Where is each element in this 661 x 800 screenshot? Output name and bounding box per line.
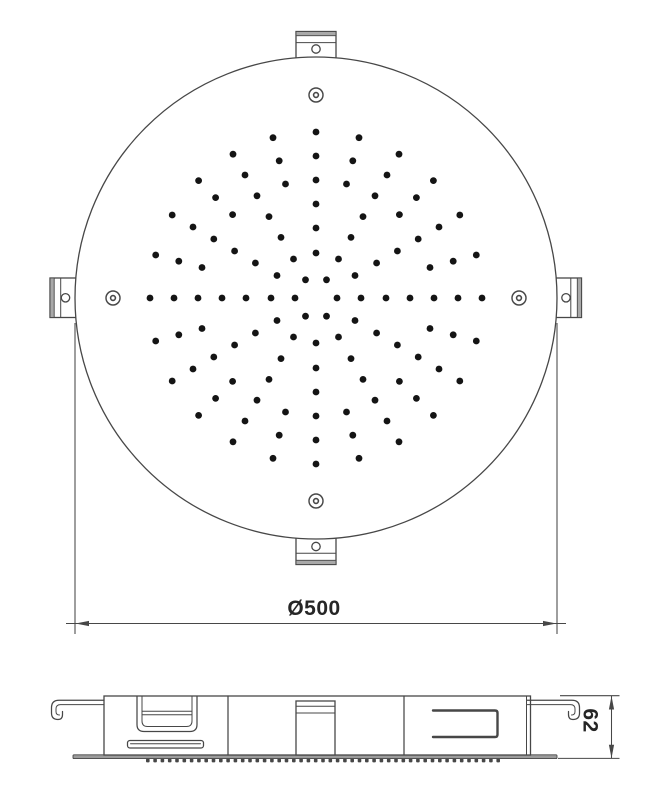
nozzle-dot xyxy=(242,172,249,179)
nozzle-tip xyxy=(219,759,223,763)
nozzle-tip xyxy=(496,759,500,763)
dimension-label-diameter: Ø500 xyxy=(287,597,340,620)
nozzle-tip xyxy=(197,759,201,763)
nozzle-dot xyxy=(231,342,238,349)
nozzle-dot xyxy=(229,211,236,218)
nozzle-dot xyxy=(195,295,202,302)
nozzle-dot xyxy=(199,264,206,271)
nozzle-dot xyxy=(195,412,202,419)
nozzle-dot xyxy=(302,276,309,283)
nozzle-dot xyxy=(276,157,283,164)
nozzle-dot xyxy=(335,256,342,263)
nozzle-dot xyxy=(274,317,281,324)
nozzle-dot xyxy=(152,338,159,345)
nozzle-tip xyxy=(350,759,354,763)
nozzle-dot xyxy=(349,157,356,164)
nozzle-tip xyxy=(445,759,449,763)
nozzle-dot xyxy=(450,331,457,338)
nozzle-tip xyxy=(226,759,230,763)
nozzle-dot xyxy=(430,177,437,184)
nozzle-dot xyxy=(292,295,299,302)
tab-flange xyxy=(50,278,54,318)
nozzle-dot xyxy=(360,213,367,220)
nozzle-dot xyxy=(229,378,236,385)
nozzle-dot xyxy=(210,354,217,361)
nozzle-tip xyxy=(460,759,464,763)
nozzle-dot xyxy=(266,213,273,220)
nozzle-tip xyxy=(168,759,172,763)
nozzle-tip xyxy=(438,759,442,763)
nozzle-dot xyxy=(430,412,437,419)
nozzle-dot xyxy=(313,389,320,396)
nozzle-dot xyxy=(373,330,380,337)
nozzle-dot xyxy=(383,295,390,302)
top-view xyxy=(50,32,582,565)
nozzle-dot xyxy=(427,264,434,271)
nozzle-dot xyxy=(313,153,320,160)
nozzle-dot xyxy=(274,272,281,279)
nozzle-tip xyxy=(321,759,325,763)
nozzle-tip xyxy=(467,759,471,763)
nozzle-tip xyxy=(329,759,333,763)
nozzle-dot xyxy=(276,432,283,439)
water-inlet xyxy=(296,701,335,755)
mounting-tab-right xyxy=(555,278,582,318)
dimension-arrow-down-icon xyxy=(609,745,614,759)
nozzle-tip xyxy=(234,759,238,763)
nozzle-dot xyxy=(252,330,259,337)
nozzle-dot xyxy=(396,438,403,445)
nozzle-dot xyxy=(372,192,379,199)
nozzle-dot xyxy=(290,334,297,341)
nozzle-dot xyxy=(456,212,463,219)
tab-flange xyxy=(296,32,336,36)
nozzle-tip xyxy=(365,759,369,763)
nozzle-dot xyxy=(171,295,178,302)
nozzle-dot xyxy=(175,258,182,265)
nozzle-dot xyxy=(407,295,414,302)
nozzle-dot xyxy=(254,397,261,404)
nozzle-dot xyxy=(268,295,275,302)
nozzle-dot xyxy=(313,225,320,232)
nozzle-dot xyxy=(313,413,320,420)
mounting-hook-right xyxy=(527,700,580,719)
nozzle-dot xyxy=(313,365,320,372)
nozzle-dot xyxy=(313,201,320,208)
nozzle-dot xyxy=(413,395,420,402)
nozzle-tip xyxy=(431,759,435,763)
nozzle-dot xyxy=(348,355,355,362)
nozzle-dot xyxy=(152,252,159,259)
nozzle-tip xyxy=(372,759,376,763)
nozzle-dot xyxy=(396,151,403,158)
height-dimension: 62 xyxy=(558,696,620,759)
nozzle-dot xyxy=(323,276,330,283)
nozzle-dot xyxy=(199,325,206,332)
nozzle-tip xyxy=(409,759,413,763)
tab-hole-icon xyxy=(562,294,570,302)
mounting-tab-left xyxy=(50,278,77,318)
nozzle-dot xyxy=(195,177,202,184)
nozzle-tip xyxy=(175,759,179,763)
nozzle-dot xyxy=(231,248,238,255)
nozzle-dot xyxy=(343,181,350,188)
nozzle-dot xyxy=(396,211,403,218)
nozzle-dot xyxy=(210,236,217,243)
nozzle-tip xyxy=(256,759,260,763)
nozzle-dot xyxy=(313,461,320,468)
nozzle-tip xyxy=(153,759,157,763)
nozzle-dot xyxy=(270,455,277,462)
nozzle-dot xyxy=(254,192,261,199)
nozzle-dot xyxy=(436,224,443,231)
nozzle-dot xyxy=(270,134,277,141)
nozzle-dot xyxy=(278,355,285,362)
nozzle-tip xyxy=(146,759,150,763)
nozzle-tip xyxy=(416,759,420,763)
nozzle-dot xyxy=(384,172,391,179)
dimension-label-height: 62 xyxy=(578,708,601,732)
nozzle-tip xyxy=(387,759,391,763)
nozzle-tip xyxy=(307,759,311,763)
nozzle-dot xyxy=(335,334,342,341)
nozzle-dot xyxy=(415,354,422,361)
nozzle-tip xyxy=(292,759,296,763)
nozzle-tip xyxy=(241,759,245,763)
nozzle-tip xyxy=(204,759,208,763)
nozzle-tip xyxy=(270,759,274,763)
side-view: 62 xyxy=(52,696,620,763)
nozzle-dot xyxy=(212,395,219,402)
nozzle-dot xyxy=(372,397,379,404)
nozzle-tip xyxy=(161,759,165,763)
nozzle-dot xyxy=(313,177,320,184)
nozzle-tip xyxy=(343,759,347,763)
nozzle-dot xyxy=(323,313,330,320)
nozzle-dot xyxy=(479,295,486,302)
nozzle-dot xyxy=(302,313,309,320)
nozzle-dot xyxy=(313,437,320,444)
nozzle-tip xyxy=(314,759,318,763)
dimension-arrow-left-icon xyxy=(76,621,90,626)
nozzle-dot xyxy=(413,194,420,201)
nozzle-dot xyxy=(352,317,359,324)
nozzle-dot xyxy=(396,378,403,385)
nozzle-tip xyxy=(212,759,216,763)
nozzle-dot xyxy=(190,224,197,231)
nozzle-dot xyxy=(190,366,197,373)
nozzle-dot xyxy=(358,295,365,302)
nozzle-dot xyxy=(313,250,320,257)
nozzle-dot xyxy=(456,378,463,385)
nozzle-dot xyxy=(230,151,237,158)
nozzle-dot xyxy=(169,212,176,219)
nozzle-dot xyxy=(252,260,259,267)
nozzle-tip xyxy=(263,759,267,763)
tab-hole-icon xyxy=(61,294,69,302)
nozzle-dot xyxy=(290,256,297,263)
nozzle-dot xyxy=(349,432,356,439)
nozzle-dot xyxy=(334,295,341,302)
mounting-hook-left xyxy=(52,700,105,719)
nozzle-dot xyxy=(450,258,457,265)
nozzle-dot xyxy=(313,340,320,347)
nozzle-tip xyxy=(423,759,427,763)
tab-flange xyxy=(296,560,336,564)
nozzle-dot xyxy=(373,260,380,267)
nozzle-dot xyxy=(343,409,350,416)
nozzle-dot xyxy=(219,295,226,302)
nozzle-dot xyxy=(436,366,443,373)
nozzle-tip xyxy=(336,759,340,763)
nozzle-dot xyxy=(147,295,154,302)
nozzle-dot xyxy=(175,331,182,338)
nozzle-dot xyxy=(431,295,438,302)
nozzle-tip xyxy=(402,759,406,763)
nozzle-tips xyxy=(146,759,500,763)
tab-hole-icon xyxy=(312,45,320,53)
nozzle-dot xyxy=(415,236,422,243)
mounting-tab-top xyxy=(296,32,336,60)
nozzle-dot xyxy=(473,252,480,259)
nozzle-tip xyxy=(285,759,289,763)
nozzle-tip xyxy=(299,759,303,763)
dimension-arrow-right-icon xyxy=(543,621,557,626)
nozzle-tip xyxy=(358,759,362,763)
nozzle-dot xyxy=(427,325,434,332)
nozzle-dot xyxy=(242,418,249,425)
nozzle-dot xyxy=(212,194,219,201)
nozzle-dot xyxy=(313,129,320,136)
tab-flange xyxy=(577,278,581,318)
nozzle-dot xyxy=(230,438,237,445)
nozzle-tip xyxy=(190,759,194,763)
technical-drawing-canvas: Ø500 xyxy=(0,0,661,800)
nozzle-tip xyxy=(482,759,486,763)
nozzle-tip xyxy=(380,759,384,763)
nozzle-dot xyxy=(352,272,359,279)
nozzle-dot xyxy=(348,234,355,241)
tab-hole-icon xyxy=(312,542,320,550)
nozzle-dot xyxy=(282,409,289,416)
nozzle-dot xyxy=(473,338,480,345)
dimension-arrow-up-icon xyxy=(609,696,614,710)
nozzle-dot xyxy=(394,342,401,349)
nozzle-tip xyxy=(475,759,479,763)
nozzle-tip xyxy=(453,759,457,763)
nozzle-dot xyxy=(384,418,391,425)
nozzle-dot xyxy=(243,295,250,302)
nozzle-tip xyxy=(277,759,281,763)
nozzle-dot xyxy=(282,181,289,188)
nozzle-dot xyxy=(169,378,176,385)
nozzle-dot xyxy=(356,134,363,141)
shower-head-technical-drawing: Ø500 xyxy=(0,0,661,800)
nozzle-tip xyxy=(394,759,398,763)
nozzle-dot xyxy=(360,376,367,383)
nozzle-dot xyxy=(266,376,273,383)
nozzle-dot xyxy=(278,234,285,241)
mounting-tab-bottom xyxy=(296,538,336,565)
nozzle-dot xyxy=(356,455,363,462)
nozzle-dot xyxy=(394,248,401,255)
nozzle-tip xyxy=(248,759,252,763)
nozzle-dot xyxy=(455,295,462,302)
nozzle-tip xyxy=(183,759,187,763)
nozzle-tip xyxy=(489,759,493,763)
